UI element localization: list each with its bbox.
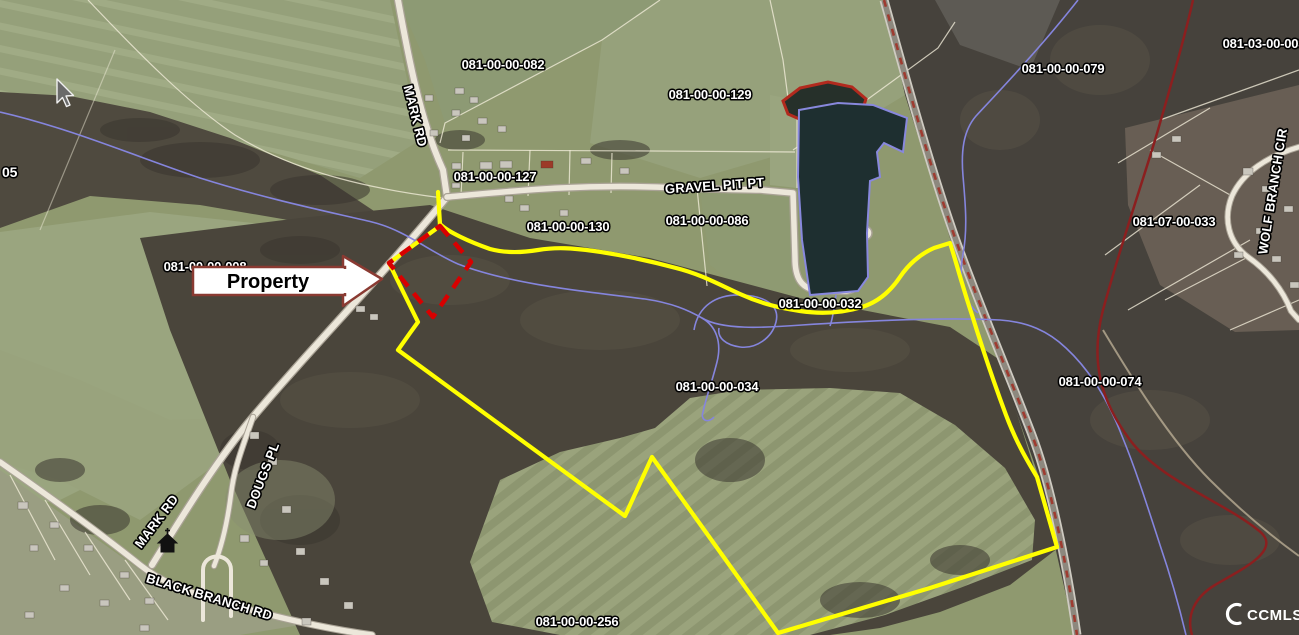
satellite-basemap [0,0,1299,635]
callout-label: Property [227,271,310,293]
parcel-label: 081-00-00-127 [454,169,537,184]
parcel-label: 081-00-00-074 [1059,374,1143,389]
parcel-label: 081-07-00-033 [1133,214,1216,229]
parcel-label: 081-00-00-086 [666,213,749,228]
parcel-label: 081-00-00-034 [676,379,760,394]
parcel-label: 081-00-00-082 [462,57,545,72]
parcel-label: 081-00-00-129 [669,87,752,102]
partial-parcel-label: 05 [2,164,18,180]
parcel-label: 081-00-00-256 [536,614,619,629]
parcel-label: 081-00-00-032 [779,296,862,311]
parcel-label: 081-00-00-079 [1022,61,1105,76]
parcel-label: 081-00-00-130 [527,219,610,234]
aerial-parcel-map[interactable]: 081-00-00-082 081-00-00-129 081-00-00-12… [0,0,1299,635]
parcel-label: 081-03-00-003 [1223,36,1299,51]
ccmls-watermark-text: CCMLS [1247,607,1299,624]
